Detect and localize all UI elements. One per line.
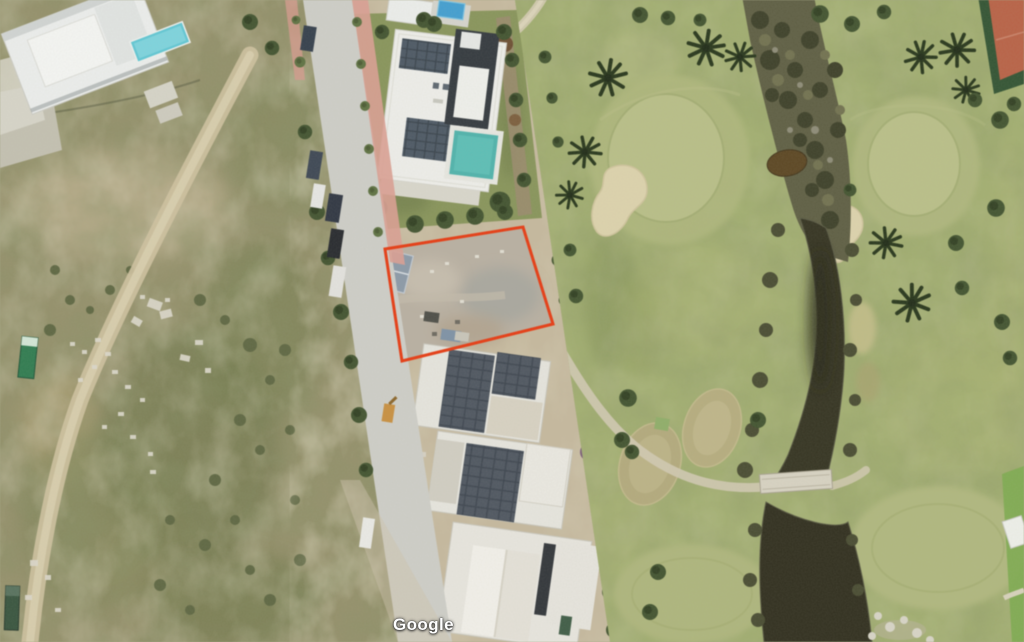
image-grain (0, 0, 1024, 642)
satellite-map[interactable]: Google (0, 0, 1024, 642)
google-watermark: Google (393, 615, 454, 635)
map-canvas[interactable] (0, 0, 1024, 642)
